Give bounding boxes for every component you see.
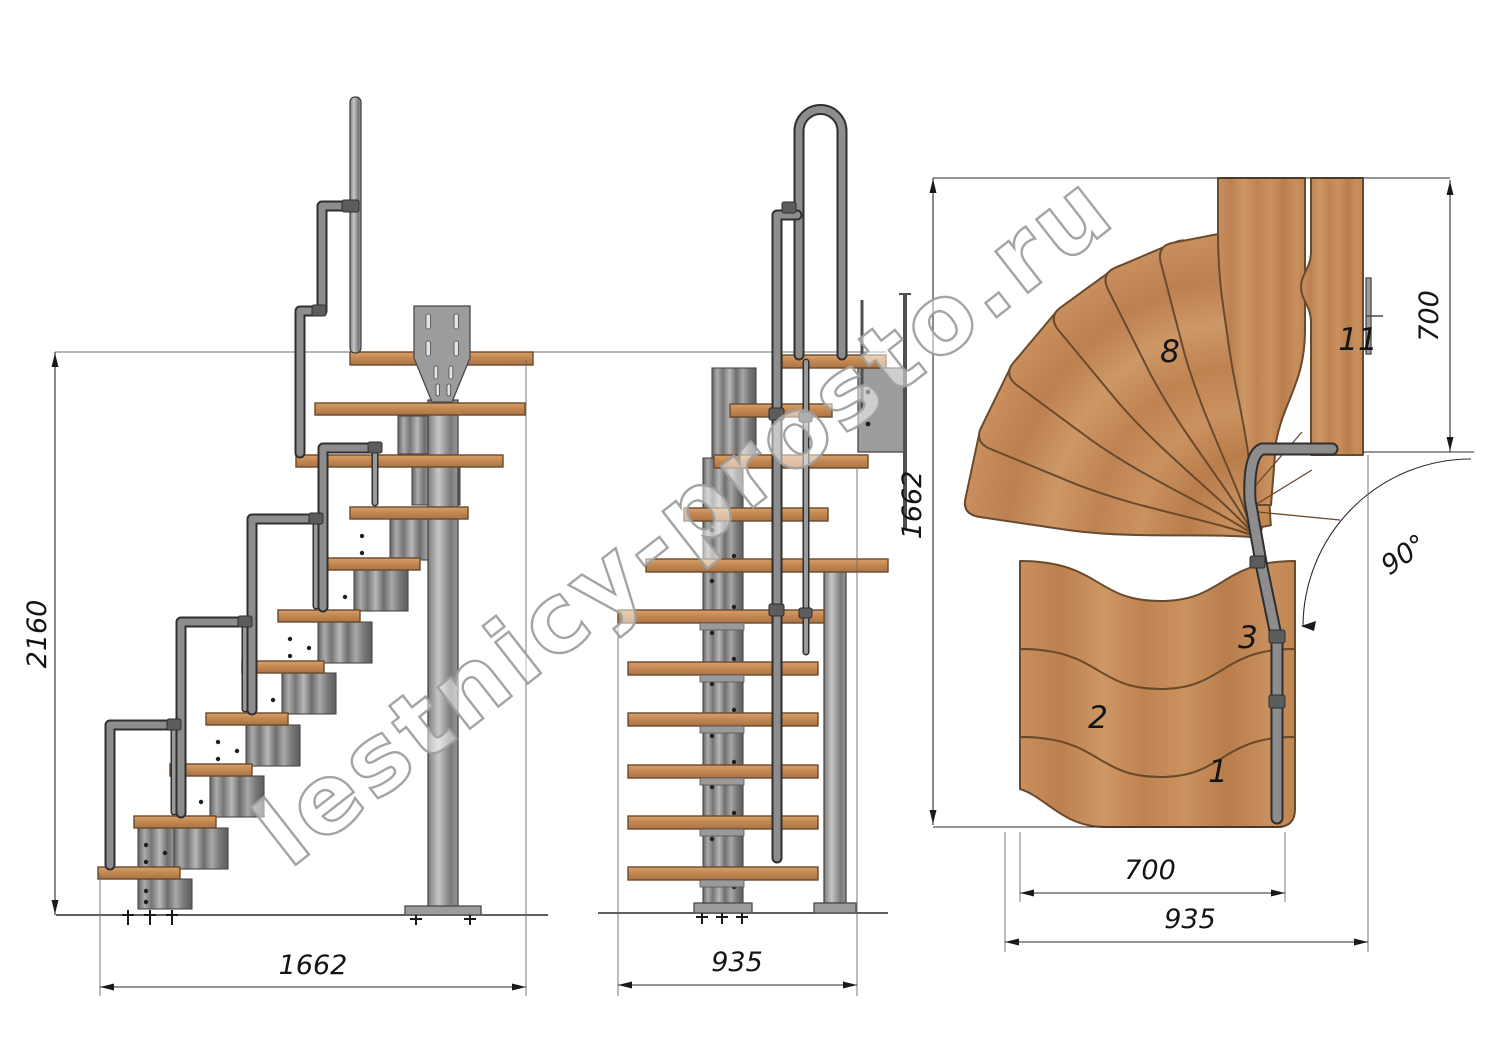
- tread-number-11: 11: [1338, 322, 1377, 358]
- dimension-angle-90: 90°: [1301, 459, 1471, 631]
- tread: [628, 816, 818, 829]
- tread: [315, 403, 525, 415]
- tread: [314, 558, 420, 570]
- pole-anchor-bolts: [410, 915, 476, 925]
- dimension-700-tread: 700: [1020, 832, 1285, 902]
- drawing-sheet: 2160 1662: [0, 0, 1500, 1061]
- anchor-bolts: [122, 910, 178, 925]
- landing-tread-11: [1301, 178, 1363, 455]
- tread: [628, 662, 818, 675]
- dim-value-turn-angle: 90°: [1376, 529, 1433, 582]
- dim-value-front-width: 935: [711, 947, 763, 978]
- dim-value-plan-depth: 1662: [897, 471, 928, 540]
- dimension-2160: 2160: [22, 352, 59, 915]
- dim-value-tread-length: 700: [1124, 855, 1176, 886]
- tread-number-2: 2: [1088, 700, 1108, 736]
- staircase-technical-drawing: 2160 1662: [0, 0, 1500, 1061]
- support-column: [354, 570, 408, 611]
- tread-number-3: 3: [1238, 620, 1258, 656]
- tread: [350, 507, 468, 519]
- pole-base-plate: [814, 903, 856, 913]
- tread: [278, 610, 360, 622]
- tread: [628, 867, 818, 880]
- tread-number-8: 8: [1160, 334, 1180, 370]
- support-column: [174, 828, 228, 869]
- tread: [628, 765, 818, 778]
- column-base-plate: [694, 903, 752, 913]
- support-column: [318, 622, 372, 663]
- side-elevation-view: 2160 1662: [22, 97, 886, 996]
- base-column: [138, 879, 192, 909]
- tread: [134, 816, 216, 828]
- right-support-pole: [824, 566, 846, 903]
- mounting-plate: [414, 306, 470, 402]
- dim-value-landing-depth: 700: [1414, 290, 1445, 342]
- support-column: [282, 673, 336, 714]
- tread: [628, 713, 818, 726]
- dim-value-plan-width: 935: [1164, 904, 1216, 935]
- pole-base-plate: [405, 906, 481, 915]
- tread: [206, 713, 288, 725]
- dim-value-total-rise: 2160: [22, 600, 53, 669]
- dim-value-total-run: 1662: [279, 950, 348, 981]
- tread-number-1: 1: [1208, 754, 1228, 790]
- top-baluster-post: [350, 97, 361, 353]
- column-anchor-bolts: [696, 913, 748, 924]
